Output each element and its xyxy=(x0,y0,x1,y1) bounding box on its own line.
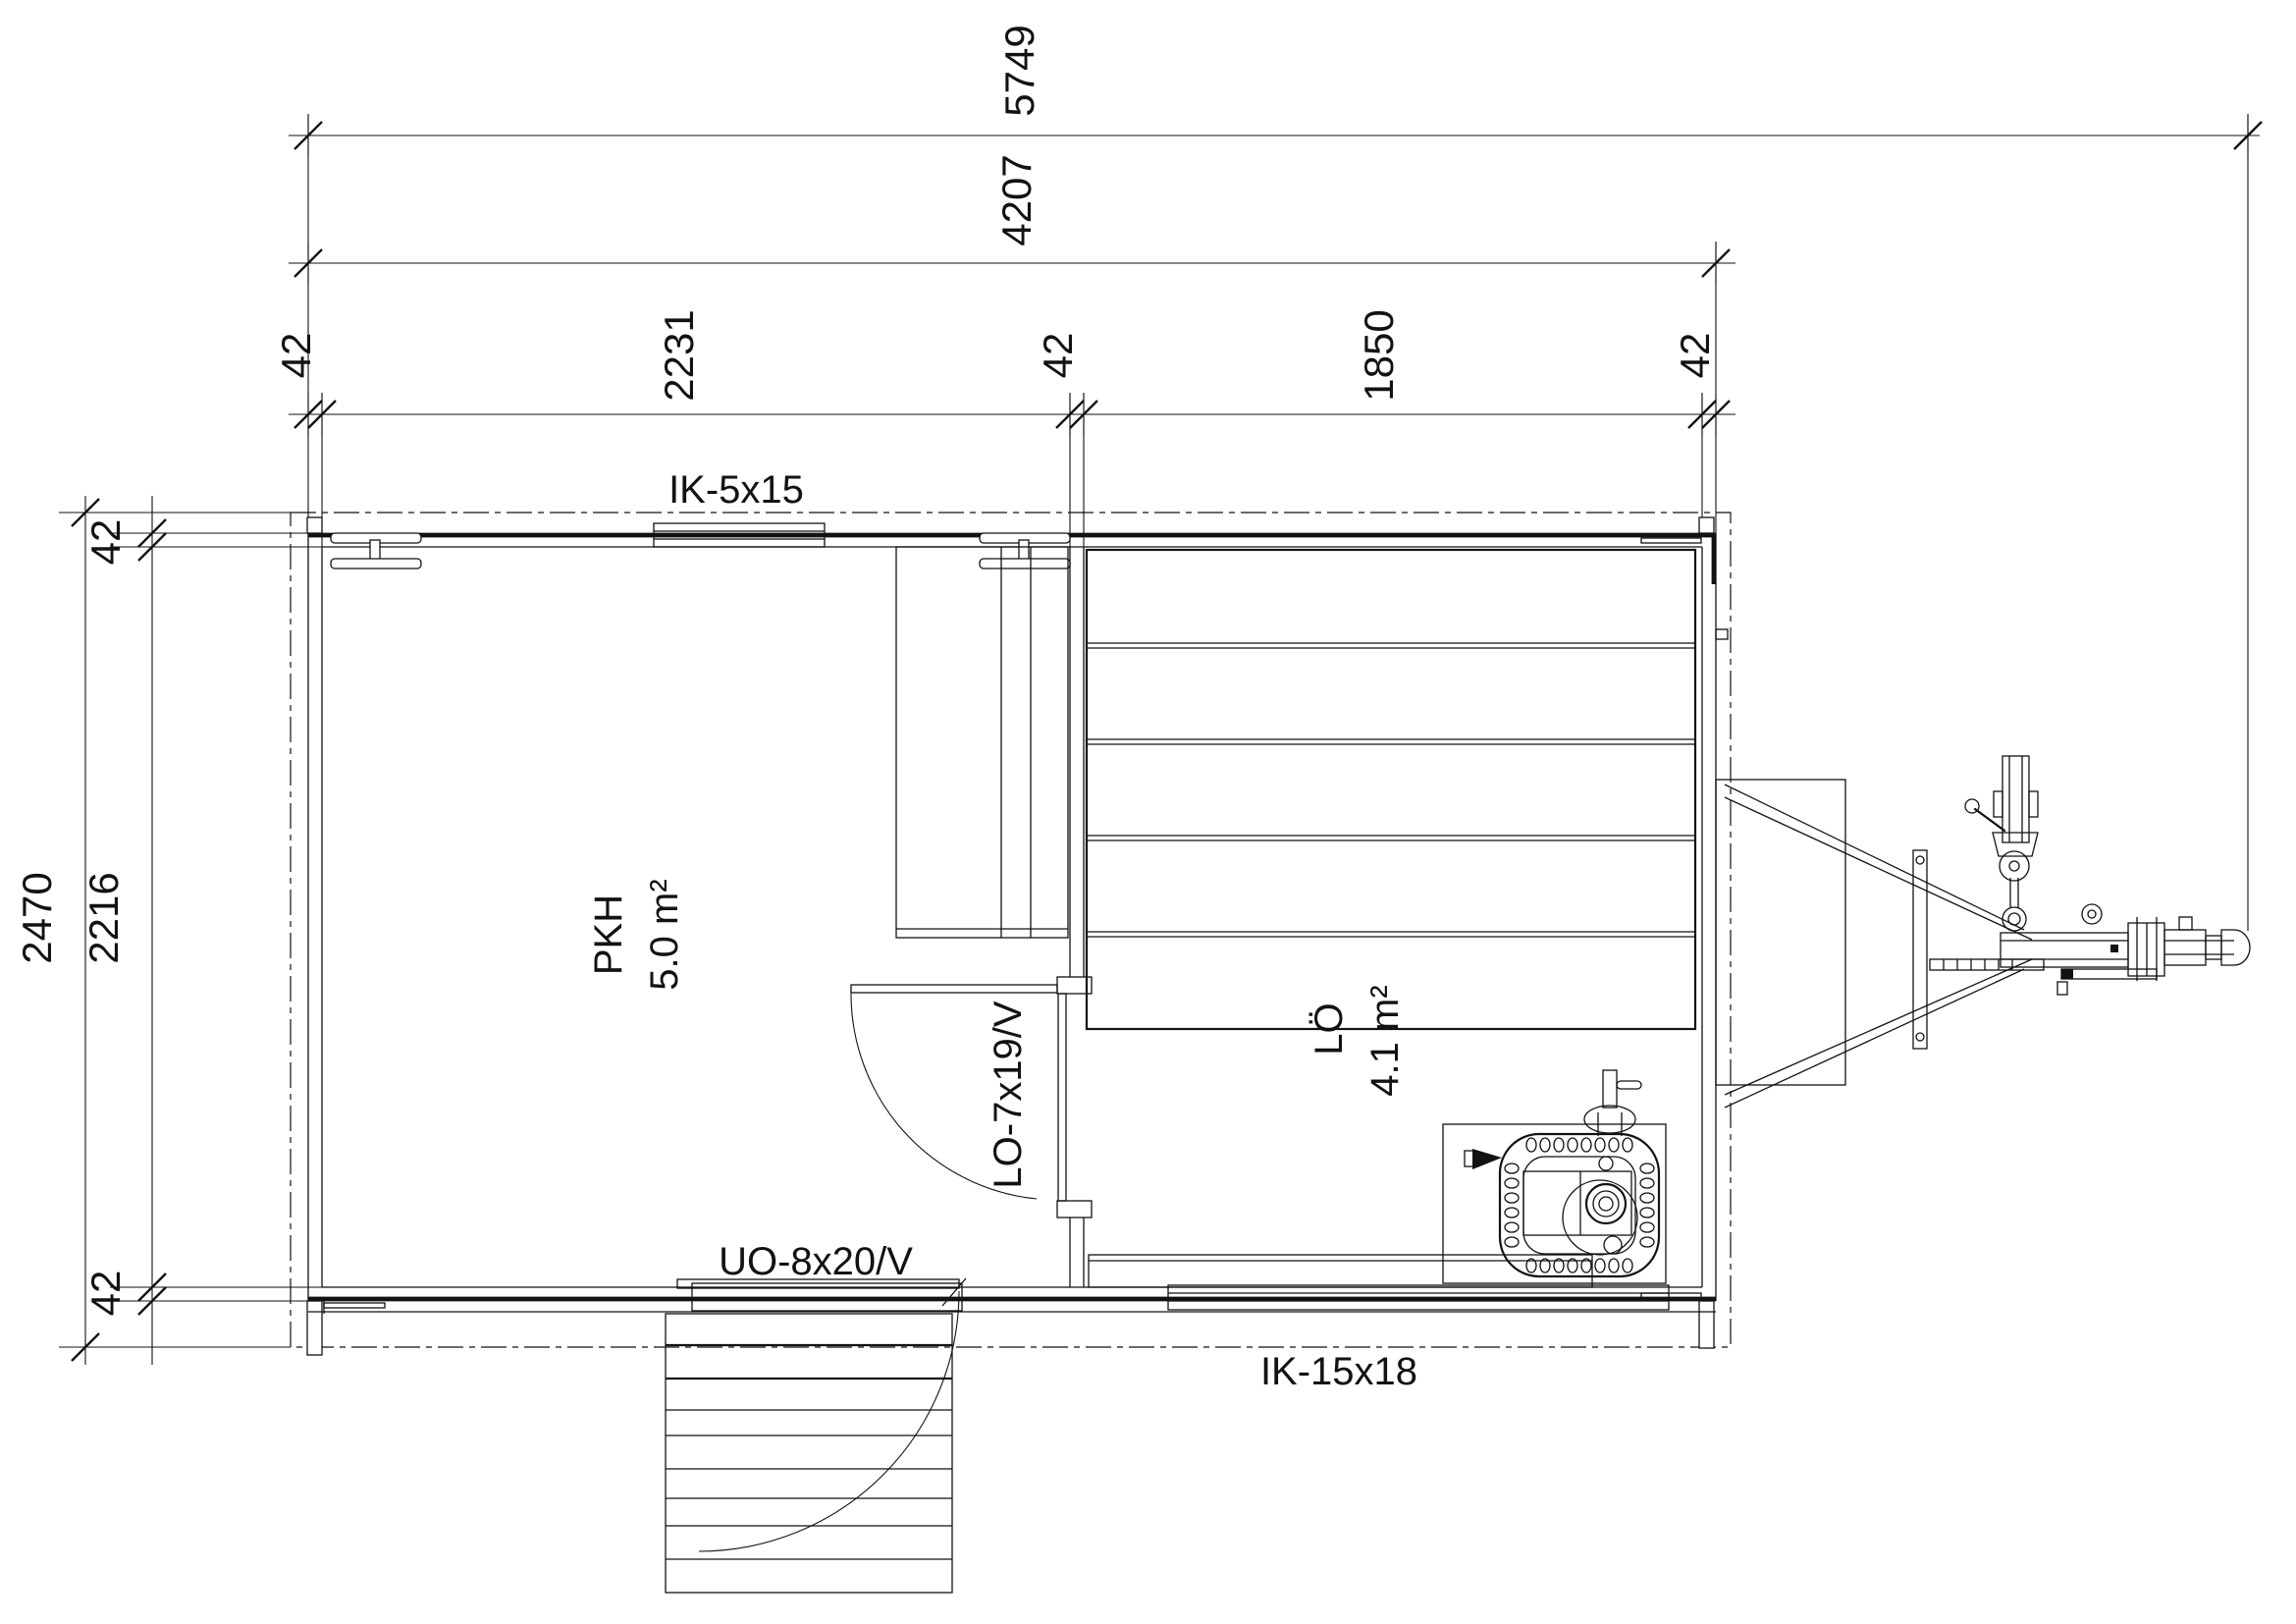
wall-joint-symbol xyxy=(980,533,1070,568)
door-jamb xyxy=(1057,1201,1092,1218)
corner-post xyxy=(1699,517,1714,533)
room-area-pkh: 5.0 m² xyxy=(643,879,686,990)
corner-post xyxy=(307,1301,322,1355)
room-name-pkh: PKH xyxy=(587,894,630,975)
sill-bar xyxy=(324,1303,385,1308)
ball-coupling-head xyxy=(2221,930,2250,965)
safety-ring xyxy=(2002,907,2026,931)
room-area-lo: 4.1 m² xyxy=(1363,985,1407,1096)
floor-plan-page: 5749 4207 42 2231 42 1850 42 2470 42 221… xyxy=(0,0,2296,1624)
sauna-room-furniture xyxy=(1087,550,1695,1287)
lower-bench xyxy=(1089,1255,1592,1287)
jockey-clamp-handle xyxy=(1975,809,2004,831)
label-window-top: IK-5x15 xyxy=(668,468,804,512)
floor-plan-drawing: 5749 4207 42 2231 42 1850 42 2470 42 221… xyxy=(0,0,2296,1624)
drawbar-box xyxy=(2001,933,2128,967)
dim-room-right: 1850 xyxy=(1356,309,1402,401)
door-leaf-closed xyxy=(1058,994,1066,1201)
dim-wall-left: 42 xyxy=(273,333,319,379)
stove-chimney xyxy=(1584,1070,1641,1136)
partition-wall xyxy=(1070,547,1084,1287)
wall-vent xyxy=(1716,629,1728,639)
dim-total-length: 5749 xyxy=(996,25,1042,116)
dim-height-outer: 2470 xyxy=(14,872,60,963)
label-exterior-door: UO-8x20/V xyxy=(719,1240,913,1283)
sill-bar xyxy=(1641,538,1701,543)
exterior-door xyxy=(677,1278,966,1551)
sauna-stove xyxy=(1443,1070,1666,1283)
stove-flue xyxy=(1586,1184,1626,1223)
trailer-chassis xyxy=(291,513,2250,1355)
drawbar-a-frame xyxy=(1725,785,2032,1108)
closet xyxy=(896,547,1068,938)
dim-height-inner: 2216 xyxy=(80,872,127,963)
door-swing-arc xyxy=(699,1291,959,1551)
drawbar-support-plate xyxy=(1716,780,1845,1085)
stove-door-handle xyxy=(1472,1149,1502,1169)
coupling-bellows xyxy=(2128,917,2164,981)
dim-wall-mid: 42 xyxy=(1035,333,1081,379)
door-leaf-open xyxy=(851,985,1057,993)
dim-room-left: 2231 xyxy=(656,309,702,401)
coupling-assembly xyxy=(1930,904,2250,995)
corner-post xyxy=(1699,1301,1714,1348)
interior-door xyxy=(851,977,1092,1218)
label-interior-door: LO-7x19/V xyxy=(987,1001,1030,1189)
jockey-wheel xyxy=(1965,756,2038,931)
dim-wall-top: 42 xyxy=(82,519,129,566)
wall-joint-symbol xyxy=(331,533,421,568)
dim-wall-right: 42 xyxy=(1672,333,1718,379)
dim-wall-bottom: 42 xyxy=(82,1271,129,1317)
label-window-bottom: IK-15x18 xyxy=(1260,1350,1417,1393)
stove-firebox xyxy=(1523,1171,1631,1235)
sauna-benches xyxy=(1087,550,1695,1029)
jockey-wheel-tube xyxy=(2002,756,2029,842)
corner-post xyxy=(307,517,322,533)
chassis-outline xyxy=(291,513,1731,1347)
dim-body-length: 4207 xyxy=(993,154,1040,245)
room-name-lo: LÖ xyxy=(1308,1002,1351,1055)
dimension-lines: 5749 4207 42 2231 42 1850 42 2470 42 221… xyxy=(14,25,2262,1365)
coupling-knob xyxy=(2082,904,2102,924)
